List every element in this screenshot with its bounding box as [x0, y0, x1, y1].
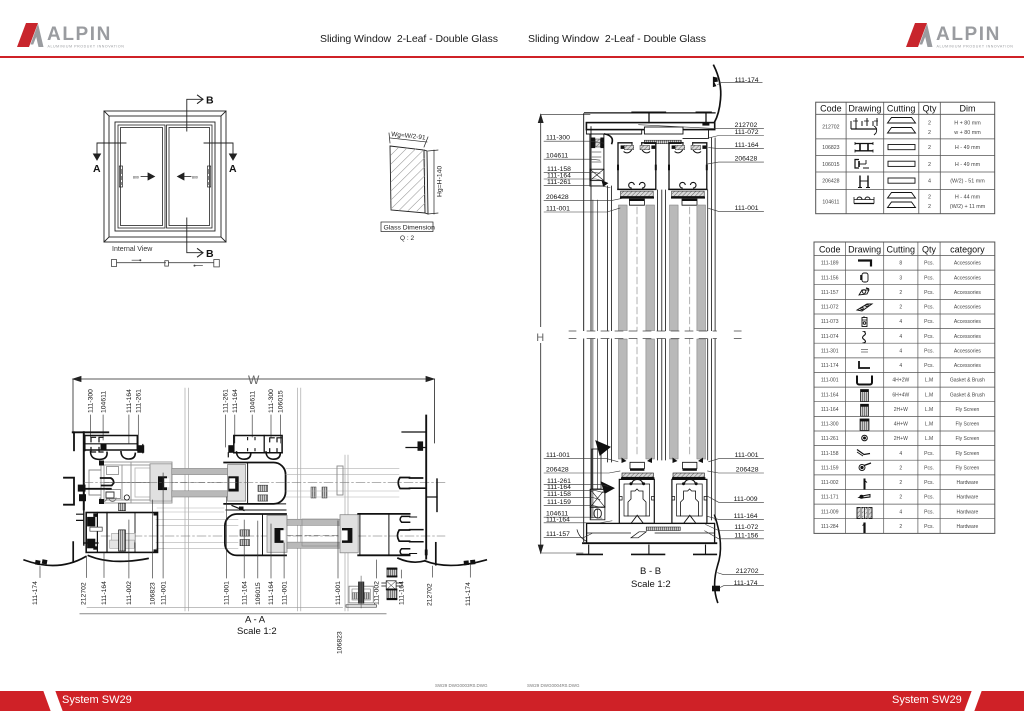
svg-text:Gasket & Brush: Gasket & Brush	[950, 392, 985, 398]
svg-text:Drawing: Drawing	[848, 244, 881, 254]
svg-text:Cutting: Cutting	[887, 244, 916, 254]
svg-text:Code: Code	[819, 244, 841, 254]
svg-text:104611: 104611	[822, 200, 839, 206]
svg-text:Pcs.: Pcs.	[924, 334, 934, 340]
svg-text:Drawing: Drawing	[848, 103, 881, 113]
svg-text:2: 2	[928, 204, 931, 210]
svg-text:106823: 106823	[822, 145, 839, 151]
svg-text:111-284: 111-284	[821, 524, 839, 530]
svg-text:4: 4	[928, 179, 931, 185]
svg-text:Code: Code	[820, 103, 842, 113]
svg-text:L.M: L.M	[925, 378, 933, 384]
svg-text:Pcs.: Pcs.	[924, 349, 934, 355]
svg-text:Accessories: Accessories	[954, 261, 981, 267]
svg-text:2H+W: 2H+W	[894, 407, 908, 413]
svg-text:111-164: 111-164	[821, 407, 839, 413]
svg-text:111-261: 111-261	[821, 436, 839, 442]
svg-text:111-157: 111-157	[821, 290, 839, 296]
svg-text:2: 2	[928, 195, 931, 201]
svg-text:H + 80 mm: H + 80 mm	[954, 121, 981, 127]
svg-text:Gasket & Brush: Gasket & Brush	[950, 378, 985, 384]
svg-text:Pcs.: Pcs.	[924, 495, 934, 501]
svg-text:2: 2	[928, 121, 931, 127]
svg-text:Fly Screen: Fly Screen	[955, 436, 979, 442]
svg-text:111-072: 111-072	[821, 305, 839, 311]
svg-text:Pcs.: Pcs.	[924, 466, 934, 472]
svg-text:2: 2	[928, 145, 931, 151]
svg-text:Fly Screen: Fly Screen	[955, 422, 979, 428]
svg-text:2: 2	[899, 480, 902, 486]
svg-text:212702: 212702	[822, 125, 839, 131]
svg-text:Pcs.: Pcs.	[924, 261, 934, 267]
svg-text:111-001: 111-001	[821, 378, 839, 384]
svg-text:Dim: Dim	[960, 103, 976, 113]
svg-text:111-009: 111-009	[821, 509, 839, 515]
svg-text:111-159: 111-159	[821, 466, 839, 472]
svg-text:L.M: L.M	[925, 422, 933, 428]
svg-text:Pcs.: Pcs.	[924, 290, 934, 296]
svg-text:111-171: 111-171	[821, 495, 839, 501]
svg-text:Accessories: Accessories	[954, 334, 981, 340]
svg-text:6H+4W: 6H+4W	[892, 392, 909, 398]
svg-text:111-002: 111-002	[821, 480, 839, 486]
svg-text:2: 2	[899, 290, 902, 296]
svg-text:111-073: 111-073	[821, 319, 839, 325]
svg-text:2: 2	[928, 162, 931, 168]
svg-text:Hardware: Hardware	[957, 480, 979, 486]
svg-text:L.M: L.M	[925, 436, 933, 442]
svg-text:111-158: 111-158	[821, 451, 839, 457]
svg-text:Qty: Qty	[922, 103, 937, 113]
svg-text:111-301: 111-301	[821, 349, 839, 355]
svg-text:111-300: 111-300	[821, 422, 839, 428]
svg-text:Hardware: Hardware	[957, 495, 979, 501]
svg-text:2: 2	[928, 130, 931, 136]
svg-text:Pcs.: Pcs.	[924, 305, 934, 311]
svg-text:Accessories: Accessories	[954, 319, 981, 325]
svg-text:Cutting: Cutting	[887, 103, 916, 113]
svg-text:Accessories: Accessories	[954, 305, 981, 311]
svg-text:111-174: 111-174	[821, 363, 839, 369]
svg-text:Pcs.: Pcs.	[924, 524, 934, 530]
svg-text:Hardware: Hardware	[957, 509, 979, 515]
svg-text:Pcs.: Pcs.	[924, 480, 934, 486]
svg-text:(W/2) - 51 mm: (W/2) - 51 mm	[950, 179, 985, 185]
svg-text:Pcs.: Pcs.	[924, 319, 934, 325]
svg-text:Hardware: Hardware	[957, 524, 979, 530]
svg-text:Accessories: Accessories	[954, 290, 981, 296]
svg-text:Qty: Qty	[922, 244, 937, 254]
svg-text:Fly Screen: Fly Screen	[955, 407, 979, 413]
svg-text:H - 44 mm: H - 44 mm	[955, 195, 981, 201]
svg-text:Accessories: Accessories	[954, 275, 981, 281]
svg-text:4H+W: 4H+W	[894, 422, 908, 428]
svg-text:4: 4	[899, 451, 902, 457]
svg-text:L.M: L.M	[925, 407, 933, 413]
svg-text:106015: 106015	[822, 162, 839, 168]
svg-text:H - 49 mm: H - 49 mm	[955, 162, 981, 168]
svg-text:Fly Screen: Fly Screen	[955, 466, 979, 472]
svg-text:111-156: 111-156	[821, 275, 839, 281]
svg-text:4: 4	[899, 363, 902, 369]
svg-text:2: 2	[899, 466, 902, 472]
svg-text:Fly Screen: Fly Screen	[955, 451, 979, 457]
svg-text:111-164: 111-164	[821, 392, 839, 398]
svg-text:Accessories: Accessories	[954, 363, 981, 369]
svg-text:4: 4	[899, 319, 902, 325]
svg-text:2: 2	[899, 524, 902, 530]
svg-text:L.M: L.M	[925, 392, 933, 398]
svg-text:4: 4	[899, 349, 902, 355]
svg-text:Accessories: Accessories	[954, 349, 981, 355]
svg-text:2: 2	[899, 305, 902, 311]
svg-text:H - 49 mm: H - 49 mm	[955, 145, 981, 151]
svg-text:4: 4	[899, 509, 902, 515]
svg-text:Pcs.: Pcs.	[924, 363, 934, 369]
svg-text:category: category	[950, 244, 985, 254]
svg-text:111-074: 111-074	[821, 334, 839, 340]
svg-text:3: 3	[899, 275, 902, 281]
svg-text:2: 2	[899, 495, 902, 501]
svg-text:2H+W: 2H+W	[894, 436, 908, 442]
svg-text:Pcs.: Pcs.	[924, 451, 934, 457]
svg-text:w + 80 mm: w + 80 mm	[953, 130, 981, 136]
svg-text:Pcs.: Pcs.	[924, 275, 934, 281]
svg-text:206428: 206428	[822, 179, 839, 185]
svg-text:4: 4	[899, 334, 902, 340]
svg-text:111-189: 111-189	[821, 261, 839, 267]
svg-text:(W/2) + 11 mm: (W/2) + 11 mm	[950, 204, 986, 210]
svg-text:8: 8	[899, 261, 902, 267]
svg-text:4H+2W: 4H+2W	[892, 378, 909, 384]
svg-text:Pcs.: Pcs.	[924, 509, 934, 515]
